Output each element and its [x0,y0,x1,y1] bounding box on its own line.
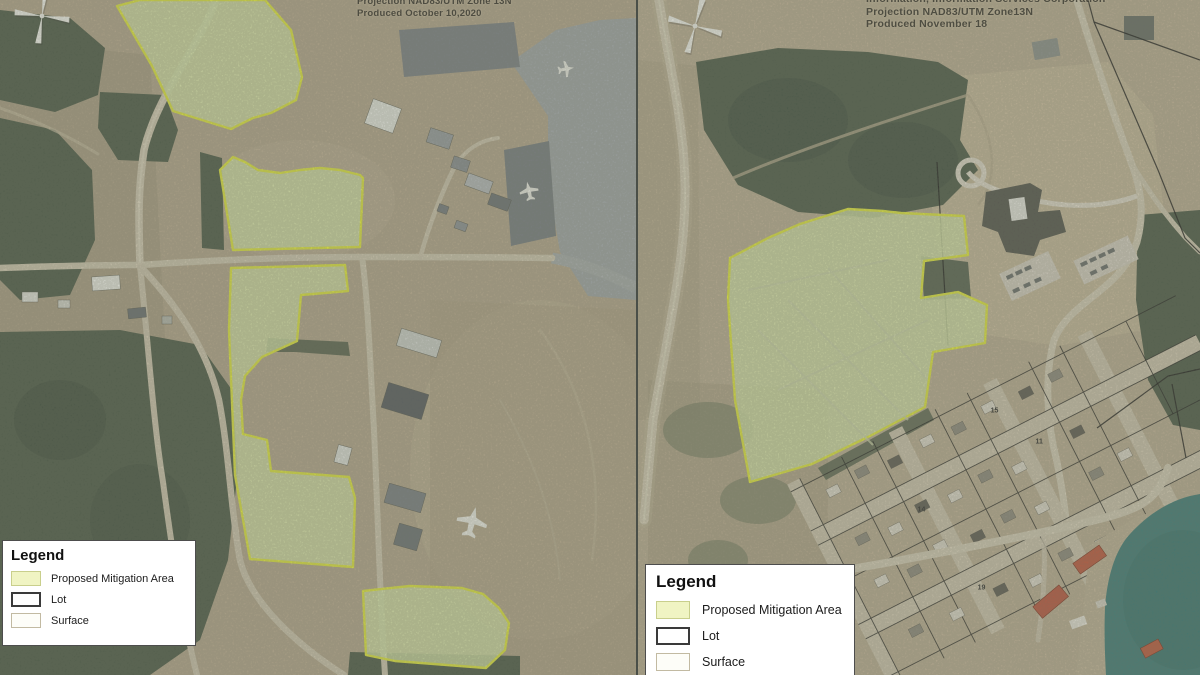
legend-title: Legend [656,572,844,592]
legend-item-surface: Surface [11,613,187,628]
right-map-credit: Information, Information Services Corpor… [866,0,1105,31]
left-produced-text: Produced October 10,2020 [357,8,512,20]
surface-swatch [11,613,41,628]
mitigation-swatch [656,601,690,619]
right-produced-text: Produced November 18 [866,18,1105,31]
legend-label: Surface [51,615,89,627]
legend-item-mitigation: Proposed Mitigation Area [11,571,187,586]
legend-item-lot: Lot [656,627,844,645]
legend-label: Lot [702,629,719,643]
legend-label: Proposed Mitigation Area [702,603,842,617]
lot-swatch [656,627,690,645]
legend-item-mitigation: Proposed Mitigation Area [656,601,844,619]
legend-title: Legend [11,547,187,564]
left-map-legend: Legend Proposed Mitigation Area Lot Surf… [2,540,196,646]
legend-label: Proposed Mitigation Area [51,573,174,585]
left-map-credit: Projection NAD83/UTM Zone 13N Produced O… [357,0,512,19]
right-projection-text: Projection NAD83/UTM Zone13N [866,6,1105,19]
legend-item-lot: Lot [11,592,187,607]
dual-aerial-map-figure: 15 14 11 19 [0,0,1200,675]
legend-label: Surface [702,655,745,669]
legend-label: Lot [51,594,66,606]
left-projection-text: Projection NAD83/UTM Zone 13N [357,0,512,8]
panel-divider [636,0,638,675]
surface-swatch [656,653,690,671]
lot-swatch [11,592,41,607]
mitigation-swatch [11,571,41,586]
legend-item-surface: Surface [656,653,844,671]
right-source-text: Information, Information Services Corpor… [866,0,1105,6]
right-map-legend: Legend Proposed Mitigation Area Lot Surf… [645,564,855,675]
